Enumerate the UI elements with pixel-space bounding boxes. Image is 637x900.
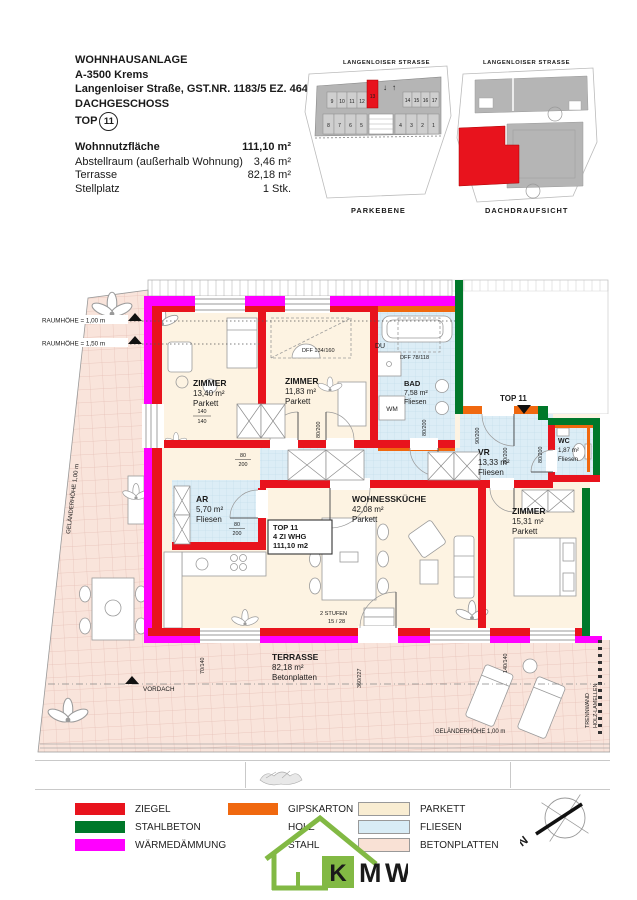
logo-letter-k: K: [329, 860, 347, 887]
svg-text:5,70 m²: 5,70 m²: [196, 505, 223, 514]
sofa: [454, 536, 474, 598]
kitchen-cabinet: [164, 552, 182, 628]
sink: [436, 402, 449, 415]
legend-swatch: [75, 821, 125, 833]
svg-text:11,83 m²: 11,83 m²: [285, 387, 316, 396]
area-table: Wohnnutzfläche111,10 m² Abstellraum (auß…: [75, 141, 291, 196]
svg-text:11: 11: [349, 99, 354, 105]
svg-text:13: 13: [370, 94, 376, 100]
svg-text:7: 7: [338, 123, 341, 129]
unit-info-box: TOP 11 4 ZI WHG 111,10 m2: [268, 520, 332, 554]
bed: [227, 318, 257, 368]
dachdraufsicht-miniplan: LANGENLOISER STRASSE DACHDRAUFSICHT: [455, 50, 603, 222]
dachdraufsicht-caption: DACHDRAUFSICHT: [485, 206, 568, 215]
svg-text:16: 16: [423, 98, 429, 104]
svg-text:Fliesen: Fliesen: [558, 456, 579, 463]
svg-text:82,18 m²: 82,18 m²: [272, 663, 304, 672]
kitchen-sink: [196, 558, 208, 570]
svg-text:7,58 m²: 7,58 m²: [404, 390, 428, 397]
svg-text:360/227: 360/227: [357, 669, 363, 689]
svg-text:TERRASSE: TERRASSE: [272, 652, 319, 662]
trennwand-label-1: TRENNWAND: [585, 693, 591, 728]
svg-text:4 ZI WHG: 4 ZI WHG: [273, 532, 306, 541]
svg-text:WOHNESSKÜCHE: WOHNESSKÜCHE: [352, 494, 426, 504]
svg-text:Parkett: Parkett: [512, 527, 538, 536]
svg-text:200: 200: [233, 531, 242, 537]
svg-text:Parkett: Parkett: [352, 515, 378, 524]
parkebene-caption: PARKEBENE: [351, 206, 406, 215]
gelaender-bottom-label: GELÄNDERHÖHE 1,00 m: [435, 728, 505, 735]
logo-letter-w: W: [385, 858, 408, 888]
main-floor-plan: ZIMMER 13,40 m² Parkett ZIMMER 11,83 m² …: [30, 236, 610, 766]
svg-text:5: 5: [360, 123, 363, 129]
svg-text:2: 2: [421, 123, 424, 129]
svg-text:TOP 11: TOP 11: [273, 523, 298, 532]
svg-text:80: 80: [240, 453, 246, 459]
street-label: LANGENLOISER STRASSE: [343, 60, 430, 66]
unit-number-circle: 11: [99, 112, 118, 131]
margin-sketch: [252, 762, 312, 788]
project-title: WOHNHAUSANLAGE: [75, 53, 314, 68]
stufen-label-2: 15 / 28: [328, 619, 345, 625]
svg-text:80/200: 80/200: [422, 420, 428, 437]
svg-text:111,10 m2: 111,10 m2: [273, 541, 308, 550]
unit-number: TOP 11: [75, 112, 314, 131]
floor-plan-sheet: WOHNHAUSANLAGE A-3500 Krems Langenloiser…: [0, 0, 637, 900]
vordach-label: VORDACH: [143, 686, 175, 693]
svg-text:80/200: 80/200: [538, 447, 544, 464]
svg-text:1: 1: [432, 123, 435, 129]
street-label: LANGENLOISER STRASSE: [483, 60, 570, 66]
svg-text:140: 140: [198, 419, 207, 425]
room-label-du: DU: [375, 343, 385, 350]
stufen-label-1: 2 STUFEN: [320, 611, 347, 617]
table-row: Stellplatz1 Stk.: [75, 183, 291, 197]
svg-text:TOP 11: TOP 11: [500, 394, 527, 403]
svg-text:140: 140: [198, 409, 207, 415]
kmw-logo: K M W: [258, 812, 408, 898]
sink: [436, 380, 449, 393]
dff-label-134: DFF 134/160: [302, 348, 335, 354]
svg-text:80/200: 80/200: [316, 422, 322, 439]
svg-text:Betonplatten: Betonplatten: [272, 673, 317, 682]
roof-edge-band: [452, 280, 608, 291]
roof-opening: [569, 101, 581, 110]
outside-gap: [590, 482, 610, 640]
wc-sink: [557, 428, 569, 436]
svg-text:10: 10: [339, 99, 345, 105]
project-level: DACHGESCHOSS: [75, 97, 314, 112]
compass-needle: [536, 804, 582, 834]
wm-label: WM: [386, 406, 398, 413]
divider-tick: [245, 762, 246, 788]
svg-text:Fliesen: Fliesen: [404, 399, 427, 406]
svg-text:80/200: 80/200: [503, 448, 509, 465]
svg-text:ZIMMER: ZIMMER: [285, 376, 319, 386]
svg-text:80: 80: [234, 522, 240, 528]
divider-tick: [510, 762, 511, 788]
table-row: Abstellraum (außerhalb Wohnung)3,46 m²: [75, 156, 291, 170]
svg-text:13,40 m²: 13,40 m²: [193, 389, 225, 398]
svg-text:Parkett: Parkett: [285, 397, 311, 406]
legend-item-ziegel: ZIEGEL: [75, 802, 171, 816]
raumhoehe-2: RAUMHÖHE = 1,50 m: [42, 340, 105, 348]
svg-text:3: 3: [410, 123, 413, 129]
title-block: WOHNHAUSANLAGE A-3500 Krems Langenloiser…: [75, 53, 314, 131]
svg-text:14: 14: [405, 98, 411, 104]
coffee-table: [420, 560, 438, 584]
svg-text:140/140: 140/140: [503, 654, 509, 674]
stairwell-area: [463, 280, 608, 414]
trennwand-label-2: HOLZ-LAMELLEN: [593, 684, 599, 728]
svg-text:WC: WC: [558, 438, 570, 445]
divider-line: [35, 760, 610, 761]
legend-item-stahlbeton: STAHLBETON: [75, 820, 201, 834]
roof-opening: [479, 98, 493, 108]
svg-text:15: 15: [414, 98, 420, 104]
svg-text:Fliesen: Fliesen: [196, 515, 222, 524]
step: [364, 608, 394, 617]
svg-text:AR: AR: [196, 494, 208, 504]
svg-text:4: 4: [399, 123, 402, 129]
kitchen-counter: [182, 552, 266, 576]
svg-text:6: 6: [349, 123, 352, 129]
stair-core: [369, 114, 393, 134]
svg-text:Parkett: Parkett: [193, 399, 219, 408]
svg-text:8: 8: [327, 123, 330, 129]
svg-text:17: 17: [432, 98, 438, 104]
armchair: [168, 342, 192, 372]
pillow: [563, 573, 574, 591]
stove-burner: [231, 555, 238, 562]
raumhoehe-1: RAUMHÖHE = 1,00 m: [42, 317, 105, 325]
svg-text:15,31 m²: 15,31 m²: [512, 517, 544, 526]
legend-swatch: [75, 839, 125, 851]
svg-text:9: 9: [331, 99, 334, 105]
project-city: A-3500 Krems: [75, 68, 314, 83]
dff-label-78: DFF 78/118: [400, 355, 429, 361]
table-row: Terrasse82,18 m²: [75, 169, 291, 183]
svg-text:Fliesen: Fliesen: [478, 468, 504, 477]
svg-text:200: 200: [239, 462, 248, 468]
outside-gap: [600, 414, 610, 484]
outdoor-chair: [80, 586, 91, 602]
pillow: [563, 543, 574, 561]
project-street: Langenloiser Straße, GST.NR. 1183/5 EZ. …: [75, 82, 314, 97]
svg-text:ZIMMER: ZIMMER: [193, 378, 227, 388]
svg-text:42,08 m²: 42,08 m²: [352, 505, 384, 514]
legend-swatch: [75, 803, 125, 815]
arrow-down-icon: ↓: [383, 83, 387, 92]
svg-text:ZIMMER: ZIMMER: [512, 506, 546, 516]
step: [364, 617, 394, 626]
logo-letter-m: M: [359, 858, 382, 888]
svg-text:12: 12: [359, 99, 365, 105]
arrow-up-icon: ↑: [392, 83, 396, 92]
svg-text:VR: VR: [478, 447, 490, 457]
compass: N: [520, 783, 610, 873]
roof-edge-band: [148, 280, 452, 296]
wardrobe: [338, 382, 366, 426]
svg-text:90/200: 90/200: [475, 428, 481, 445]
svg-text:1,87 m²: 1,87 m²: [558, 447, 579, 454]
parkebene-miniplan: LANGENLOISER STRASSE 9 10 11 12 13 14 15…: [303, 50, 458, 222]
svg-text:70/140: 70/140: [200, 658, 206, 675]
svg-text:BAD: BAD: [404, 379, 421, 388]
table-row: Wohnnutzfläche111,10 m²: [75, 141, 291, 155]
lounger-table: [523, 659, 537, 673]
compass-north-label: N: [520, 833, 531, 849]
legend-item-waermedaemmung: WÄRMEDÄMMUNG: [75, 838, 226, 852]
